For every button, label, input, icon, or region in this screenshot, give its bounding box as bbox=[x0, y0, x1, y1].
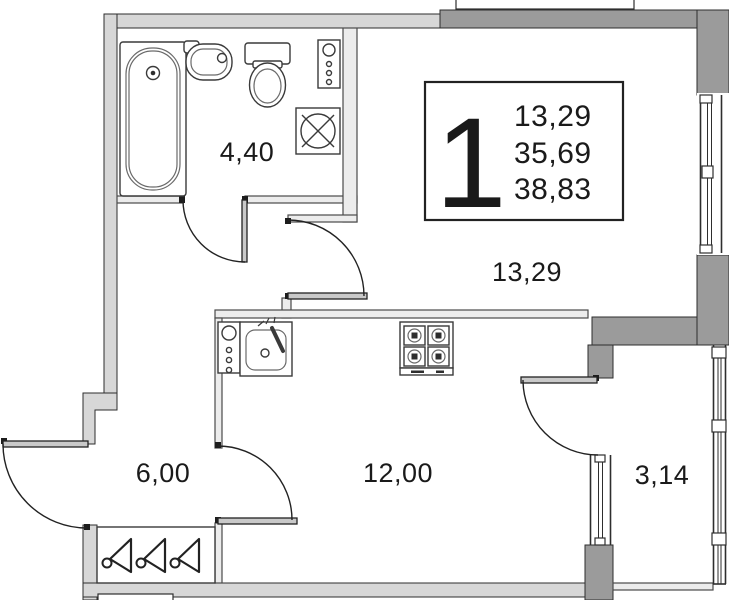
bathtub-icon bbox=[120, 42, 186, 196]
kitchen-utility-panel-icon bbox=[218, 322, 240, 373]
kitchen-north-wall bbox=[215, 310, 588, 318]
door-jamb bbox=[84, 524, 90, 530]
balcony-left-wall-top bbox=[588, 345, 613, 378]
door-swing-arc bbox=[288, 220, 364, 296]
burner-icon bbox=[428, 326, 449, 345]
door-icon bbox=[242, 200, 247, 262]
stove-icon bbox=[400, 322, 453, 375]
kitchen-fixtures bbox=[218, 317, 453, 376]
kitchen-sink-icon bbox=[240, 317, 292, 376]
exterior-structure-outline-bottom bbox=[98, 594, 173, 600]
living-room-door bbox=[285, 218, 367, 299]
door-icon bbox=[521, 377, 597, 383]
living-west-wall bbox=[343, 28, 357, 222]
door-jamb bbox=[179, 196, 185, 203]
wardrobe bbox=[97, 527, 215, 583]
window-jamb bbox=[595, 455, 605, 462]
floor-plan-screenshot: 1 13,29 35,69 38,83 4,40 13,29 6,00 12,0… bbox=[0, 0, 729, 600]
door-icon bbox=[3, 441, 88, 447]
right-wall-upper bbox=[697, 10, 729, 95]
door-icon bbox=[218, 518, 297, 524]
kitchen-west-wall-lower bbox=[215, 523, 222, 583]
window-jamb bbox=[595, 538, 605, 545]
info-box: 1 13,29 35,69 38,83 bbox=[425, 82, 623, 235]
room-count: 1 bbox=[435, 92, 506, 235]
entrance-door bbox=[1, 438, 90, 530]
window-mullion bbox=[702, 166, 713, 178]
left-wall-step bbox=[83, 393, 117, 444]
hallway-area-label: 6,00 bbox=[136, 458, 191, 488]
living-room-area-label: 13,29 bbox=[492, 257, 562, 287]
balcony-bottom-edge bbox=[613, 583, 713, 590]
left-wall bbox=[104, 14, 117, 393]
kitchen-door bbox=[215, 442, 297, 524]
balcony-door bbox=[521, 375, 599, 455]
floor-plan: 1 13,29 35,69 38,83 4,40 13,29 6,00 12,0… bbox=[0, 0, 729, 600]
top-wall-right bbox=[440, 10, 697, 28]
window-jamb bbox=[700, 245, 712, 253]
bath-sink-icon bbox=[184, 41, 232, 80]
balcony-glazing bbox=[712, 345, 726, 584]
bathroom-fixtures bbox=[120, 40, 340, 196]
door-jamb bbox=[215, 442, 221, 448]
door-icon bbox=[288, 293, 367, 299]
burner-icon bbox=[404, 326, 425, 345]
kitchen-area-label: 12,00 bbox=[363, 458, 433, 488]
kitchen-balcony-window bbox=[591, 455, 611, 545]
info-value-area: 35,69 bbox=[514, 137, 592, 170]
door-jamb bbox=[285, 218, 291, 224]
toilet-icon bbox=[245, 43, 290, 107]
window-mullion bbox=[712, 533, 726, 545]
door-swing-arc bbox=[183, 200, 245, 262]
bathroom-door bbox=[179, 196, 248, 262]
balcony-top-wall bbox=[592, 317, 697, 345]
window-mullion bbox=[712, 347, 726, 358]
washing-machine-icon bbox=[296, 108, 340, 154]
burner-icon bbox=[428, 347, 449, 366]
balcony-left-wall-bottom bbox=[585, 545, 613, 600]
living-room-window bbox=[697, 93, 729, 255]
exterior-structure-outline-top bbox=[456, 0, 634, 9]
utility-panel-icon bbox=[318, 40, 340, 88]
bathroom-area-label: 4,40 bbox=[220, 137, 275, 167]
window-mullion bbox=[712, 420, 726, 432]
top-wall bbox=[104, 14, 445, 28]
door-swing-arc bbox=[218, 446, 292, 520]
window-jamb bbox=[700, 95, 712, 103]
bathroom-south-wall-right bbox=[245, 196, 357, 203]
door-swing-arc bbox=[3, 444, 87, 528]
balcony-area-label: 3,14 bbox=[635, 460, 690, 490]
info-value-total-area: 38,83 bbox=[514, 173, 592, 206]
right-wall-mid bbox=[697, 255, 729, 345]
info-value-living-area: 13,29 bbox=[514, 100, 592, 133]
bathroom-south-wall-left bbox=[117, 196, 183, 203]
door-swing-arc bbox=[523, 380, 598, 455]
burner-icon bbox=[404, 347, 425, 366]
